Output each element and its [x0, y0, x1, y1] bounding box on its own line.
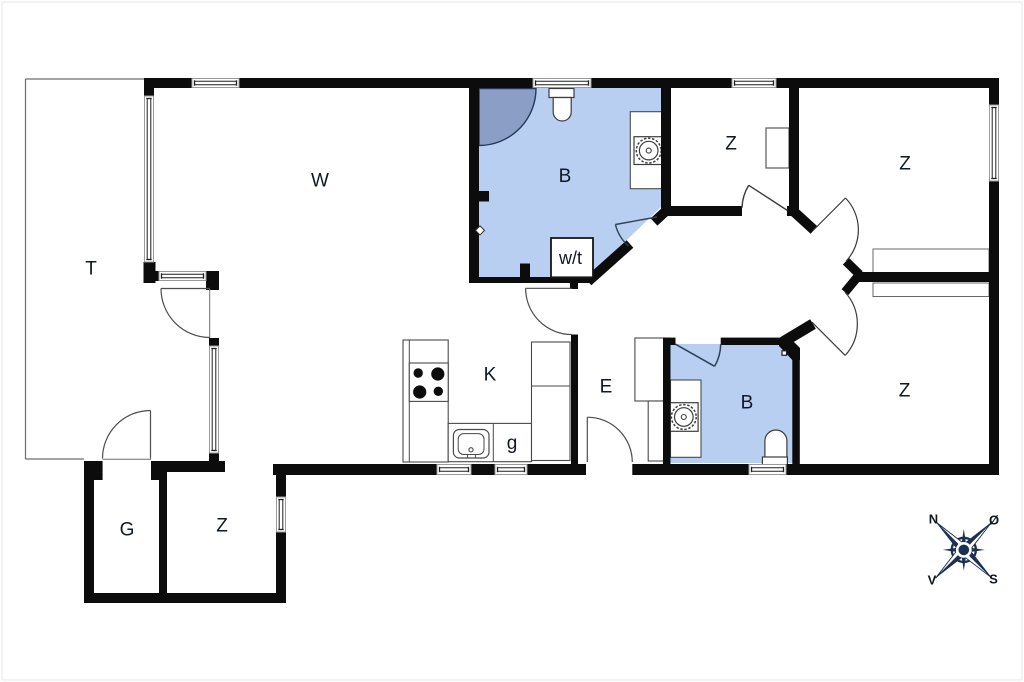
- svg-text:Z: Z: [216, 516, 228, 537]
- svg-text:w/t: w/t: [558, 248, 582, 268]
- svg-text:Z: Z: [899, 381, 911, 402]
- svg-text:Z: Z: [725, 134, 737, 155]
- svg-text:G: G: [120, 520, 135, 541]
- svg-text:N: N: [929, 512, 938, 527]
- svg-text:W: W: [311, 171, 329, 192]
- svg-text:S: S: [989, 572, 998, 587]
- svg-text:g: g: [507, 433, 518, 454]
- svg-text:T: T: [85, 259, 97, 280]
- svg-text:B: B: [559, 166, 572, 187]
- svg-text:B: B: [741, 393, 754, 414]
- svg-text:Ø: Ø: [989, 513, 999, 528]
- svg-text:Z: Z: [899, 154, 911, 175]
- svg-text:K: K: [484, 365, 497, 386]
- svg-text:E: E: [600, 377, 613, 398]
- svg-text:V: V: [928, 573, 937, 588]
